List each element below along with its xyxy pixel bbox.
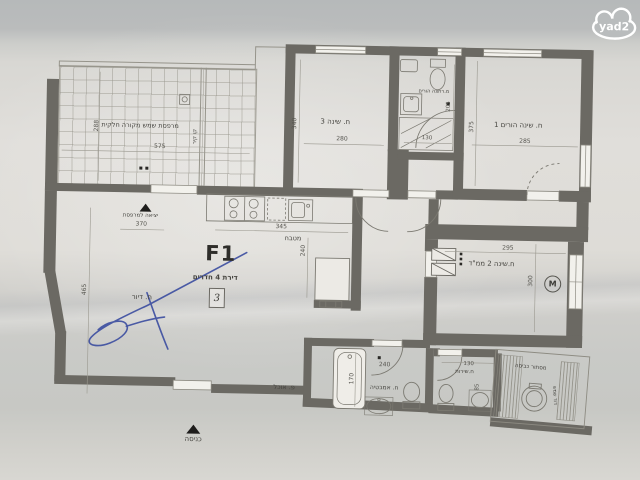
terrace-exit-arrow-icon	[140, 204, 152, 212]
room-label-kitchen: מטבח	[285, 235, 302, 242]
water-heater-label: דוד שמש	[551, 386, 557, 405]
dimension-service-w: 130	[463, 362, 474, 368]
photo-background: yad2 F1 דירת 4 חדרים 3 M מרפסת שמש מקורה…	[0, 0, 640, 480]
dimension-terrace-exit-w: 370	[135, 221, 147, 227]
toilet-fixture	[430, 59, 446, 90]
room-label-dining: פ. אוכל	[273, 384, 295, 391]
kitchen-sink-fixture	[288, 199, 312, 220]
room-label-terrace: מרפסת שמש מקורה חלקית	[101, 122, 179, 130]
terrace-drain-icon	[180, 94, 190, 104]
reference-dots	[136, 97, 465, 361]
room-label-bedroom3: ח. שינה 3	[320, 118, 350, 126]
room-label-living: ח. דיור	[132, 294, 152, 301]
dimension-kitchen-w: 345	[275, 224, 287, 230]
vanity-sink-fixture	[400, 94, 421, 115]
dimension-bedroom2-h: 300	[528, 275, 534, 287]
room-label-parents-bath: מ.רחצה הורים	[418, 89, 449, 95]
washing-machine-fixture	[521, 383, 548, 412]
yad2-logo-text: yad2	[599, 21, 629, 33]
wall-line-note: קו קיר	[193, 129, 199, 144]
dimension-parents-bath-h: 205	[447, 101, 453, 112]
dimension-parents-bath-w: 130	[422, 136, 433, 142]
dimension-bedroom1-h: 375	[469, 121, 475, 133]
room-label-service-wc: ח.שירות	[455, 370, 474, 376]
unit-number-box: 3	[209, 288, 225, 308]
dimension-living-h: 465	[82, 284, 88, 296]
dimension-terrace-w: 575	[154, 144, 166, 150]
room-label-bedroom1: ח. שינה הורים 1	[494, 122, 543, 130]
kitchen-counter	[206, 194, 352, 224]
plan-id: F1	[205, 243, 236, 265]
dimension-bathtub-h: 170	[349, 373, 355, 385]
dimension-service-h: 85	[475, 384, 481, 391]
terrace-exit-label: יציאה למרפסת	[123, 213, 158, 219]
refrigerator	[315, 258, 350, 308]
room-label-bedroom2: ח.שינה 2 ממ"ד	[468, 260, 514, 268]
corner-sink-fixture	[400, 60, 417, 72]
floor-plan: yad2 F1 דירת 4 חדרים 3 M מרפסת שמש מקורה…	[0, 0, 640, 480]
dimension-bedroom3-w: 280	[336, 136, 348, 142]
room-label-bathroom: ח. אמבטיה	[370, 385, 399, 392]
dimension-bathroom-door: 240	[379, 362, 391, 368]
dimension-terrace-h: 288	[94, 120, 100, 132]
laundry-strip	[490, 349, 589, 428]
entrance-label: כניסה	[184, 436, 201, 443]
dimension-bedroom3-h: 340	[292, 118, 298, 130]
dimension-bedroom1-w: 285	[519, 139, 531, 145]
dimension-bedroom2-w: 295	[502, 245, 514, 251]
dimension-kitchen-h: 240	[301, 245, 307, 257]
plan-drawing	[0, 0, 640, 480]
entrance-arrow-icon	[186, 424, 200, 433]
apartment-type-label: דירת 4 חדרים	[193, 274, 238, 282]
